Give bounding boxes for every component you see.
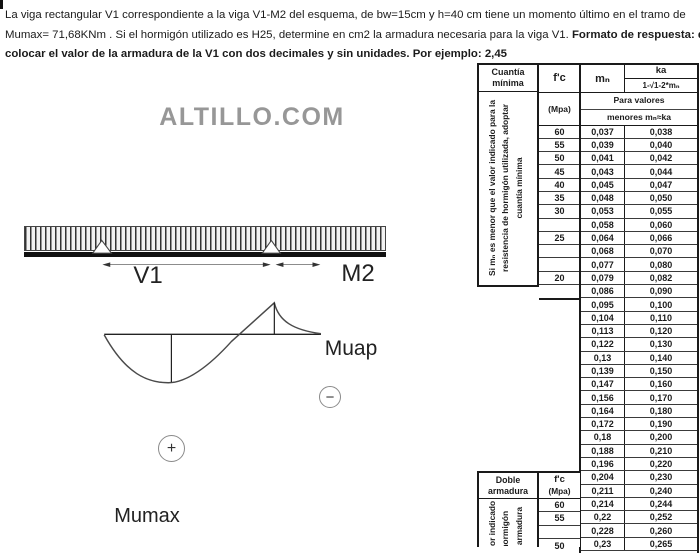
ka-cell: 0,070 — [625, 245, 697, 257]
fc-unit-lower: (Mpa) — [539, 486, 580, 500]
fc-value-cell: 60 — [539, 126, 580, 139]
ka-cell: 0,066 — [625, 232, 697, 244]
fc-value-cell: 50 — [539, 152, 580, 165]
ka-cell: 0,055 — [625, 205, 697, 217]
ka-cell: 0,252 — [625, 511, 697, 523]
ka-cell: 0,038 — [625, 126, 697, 138]
moment-curve — [104, 303, 321, 383]
ka-formula: 1-√1-2*mₙ — [625, 79, 697, 92]
table-row: 0,188 0,210 — [581, 445, 697, 458]
ka-header: ka 1-√1-2*mₙ — [625, 65, 697, 92]
mn-cell: 0,139 — [581, 365, 625, 377]
mn-cell: 0,095 — [581, 298, 625, 310]
ka-cell: 0,150 — [625, 365, 697, 377]
table-row: 0,045 0,047 — [581, 179, 697, 192]
mn-cell: 0,13 — [581, 352, 625, 364]
table-row: 0,041 0,042 — [581, 152, 697, 165]
fc-unit: (Mpa) — [539, 93, 580, 126]
fc-value-cell: 35 — [539, 192, 580, 205]
mn-cell: 0,048 — [581, 192, 625, 204]
ka-cell: 0,044 — [625, 165, 697, 177]
fc-lower-values: 605550 — [539, 499, 580, 552]
fc-value-cell — [539, 219, 580, 232]
ka-cell: 0,230 — [625, 471, 697, 483]
fc-value-cell: 60 — [539, 499, 580, 512]
ka-cell: 0,170 — [625, 391, 697, 403]
fc-value-cell: 20 — [539, 272, 580, 285]
ka-cell: 0,080 — [625, 258, 697, 270]
fc-header-lower: f'c — [539, 473, 580, 486]
table-row: 0,053 0,055 — [581, 205, 697, 218]
cuantia-line-1: Cuantía — [491, 67, 524, 78]
cuantia-line-2: mínima — [492, 78, 524, 89]
mn-cell: 0,228 — [581, 524, 625, 536]
negative-moment-sign: − — [319, 386, 341, 408]
subheader-line-2: menores mₙ≈ka — [581, 110, 697, 125]
fc-lower-column: f'c (Mpa) 605550 — [539, 471, 580, 547]
table-row: 0,086 0,090 — [581, 285, 697, 298]
ka-cell: 0,090 — [625, 285, 697, 297]
mn-cell: 0,196 — [581, 458, 625, 470]
mn-cell: 0,079 — [581, 272, 625, 284]
ka-cell: 0,244 — [625, 498, 697, 510]
mn-ka-rows: 0,037 0,038 0,039 0,040 0,041 0,042 0,04… — [581, 126, 697, 552]
doble-line-2: armadura — [488, 486, 528, 497]
mn-cell: 0,043 — [581, 165, 625, 177]
mn-cell: 0,058 — [581, 219, 625, 231]
mn-cell: 0,086 — [581, 285, 625, 297]
arrowhead-right-icon — [263, 262, 271, 267]
mn-cell: 0,204 — [581, 471, 625, 483]
fc-value-cell: 55 — [539, 139, 580, 152]
table-row: 0,22 0,252 — [581, 511, 697, 524]
watermark-text: ALTILLO.COM — [152, 103, 352, 132]
fc-value-cell — [539, 258, 580, 271]
minima-note-rotated: Si mₙ es menor que el valor indicado par… — [479, 93, 533, 283]
doble-note-rotated: Si mₙ es mayor que el valor indicado par… — [479, 499, 533, 546]
fc-value-cell — [539, 285, 580, 298]
ka-cell: 0,047 — [625, 179, 697, 191]
table-row: 0,214 0,244 — [581, 498, 697, 511]
ka-cell: 0,082 — [625, 272, 697, 284]
table-row: 0,058 0,060 — [581, 219, 697, 232]
beam-span-label: V1 — [118, 262, 178, 290]
mn-cell: 0,113 — [581, 325, 625, 337]
ka-cell: 0,240 — [625, 485, 697, 497]
arrowhead-left-icon — [102, 262, 110, 267]
ka-cell: 0,040 — [625, 139, 697, 151]
ka-cell: 0,060 — [625, 219, 697, 231]
table-row: 0,122 0,130 — [581, 338, 697, 351]
table-row: 0,156 0,170 — [581, 391, 697, 404]
page-edge-mark — [0, 0, 3, 9]
arrowhead-right-icon — [312, 262, 320, 267]
table-row: 0,068 0,070 — [581, 245, 697, 258]
doble-armadura-block: Doble armadura Si mₙ es mayor que el val… — [477, 471, 539, 547]
fc-value-cell — [539, 245, 580, 258]
mn-cell: 0,039 — [581, 139, 625, 151]
mn-cell: 0,22 — [581, 511, 625, 523]
fc-value-cell: 30 — [539, 205, 580, 218]
mn-cell: 0,214 — [581, 498, 625, 510]
problem-line-2-bold: Formato de respuesta: debe — [572, 29, 700, 41]
ka-cell: 0,100 — [625, 298, 697, 310]
table-row: 0,18 0,200 — [581, 431, 697, 444]
table-row: 0,172 0,190 — [581, 418, 697, 431]
ka-cell: 0,042 — [625, 152, 697, 164]
ka-cell: 0,050 — [625, 192, 697, 204]
mn-cell: 0,037 — [581, 126, 625, 138]
fc-value-cell: 55 — [539, 512, 580, 525]
table-subheader: Para valores menores mₙ≈ka — [581, 93, 697, 126]
fc-value-cell: 25 — [539, 232, 580, 245]
problem-line-2-normal: Mumax= 71,68KNm . Si el hormigón utiliza… — [5, 29, 572, 41]
table-row: 0,196 0,220 — [581, 458, 697, 471]
mn-cell: 0,156 — [581, 391, 625, 403]
mn-cell: 0,104 — [581, 312, 625, 324]
table-row: 0,079 0,082 — [581, 272, 697, 285]
ka-cell: 0,200 — [625, 431, 697, 443]
mn-cell: 0,041 — [581, 152, 625, 164]
arrowhead-left-icon — [276, 262, 284, 267]
problem-line-3: colocar el valor de la armadura de la V1… — [5, 45, 699, 65]
ka-cell: 0,265 — [625, 538, 697, 550]
subheader-line-1: Para valores — [581, 93, 697, 110]
ka-cell: 0,120 — [625, 325, 697, 337]
ka-cell: 0,210 — [625, 445, 697, 457]
mn-cell: 0,18 — [581, 431, 625, 443]
table-row: 0,228 0,260 — [581, 524, 697, 537]
table-row: 0,139 0,150 — [581, 365, 697, 378]
problem-line-1: La viga rectangular V1 correspondiente a… — [5, 6, 699, 26]
table-row: 0,23 0,265 — [581, 538, 697, 551]
table-row: 0,104 0,110 — [581, 312, 697, 325]
table-row: 0,048 0,050 — [581, 192, 697, 205]
table-row: 0,164 0,180 — [581, 405, 697, 418]
cuantia-minima-block: Cuantía mínima Si mₙ es menor que el val… — [477, 63, 539, 287]
fc-upper-values: 605550454035302520 — [539, 126, 580, 299]
doble-armadura-header: Doble armadura — [479, 473, 537, 499]
mn-cell: 0,077 — [581, 258, 625, 270]
minima-note-window: Si mₙ es menor que el valor indicado par… — [479, 92, 537, 284]
table-row: 0,204 0,230 — [581, 471, 697, 484]
ka-cell: 0,110 — [625, 312, 697, 324]
table-row: 0,077 0,080 — [581, 258, 697, 271]
ka-cell: 0,220 — [625, 458, 697, 470]
positive-moment-sign: + — [158, 435, 185, 462]
ka-cell: 0,180 — [625, 405, 697, 417]
mn-cell: 0,053 — [581, 205, 625, 217]
table-row: 0,064 0,066 — [581, 232, 697, 245]
ka-cell: 0,160 — [625, 378, 697, 390]
doble-line-1: Doble — [496, 475, 520, 486]
problem-statement: La viga rectangular V1 correspondiente a… — [5, 6, 699, 65]
mumax-label: Mumax — [108, 505, 186, 528]
mn-cell: 0,045 — [581, 179, 625, 191]
mn-cell: 0,122 — [581, 338, 625, 350]
muap-label: Muap — [318, 337, 384, 361]
table-row: 0,095 0,100 — [581, 298, 697, 311]
mn-cell: 0,068 — [581, 245, 625, 257]
fc-value-cell: 45 — [539, 165, 580, 178]
table-row: 0,147 0,160 — [581, 378, 697, 391]
doble-note-window: Si mₙ es mayor que el valor indicado par… — [479, 499, 537, 546]
mn-header: mₙ — [581, 65, 625, 92]
mn-ka-table: mₙ ka 1-√1-2*mₙ Para valores menores mₙ≈… — [579, 63, 699, 553]
fc-value-cell: 50 — [539, 539, 580, 552]
table-row: 0,113 0,120 — [581, 325, 697, 338]
table-row: 0,037 0,038 — [581, 126, 697, 139]
mn-cell: 0,188 — [581, 445, 625, 457]
mn-cell: 0,164 — [581, 405, 625, 417]
table-row: 0,13 0,140 — [581, 352, 697, 365]
ka-cell: 0,260 — [625, 524, 697, 536]
mn-cell: 0,23 — [581, 538, 625, 550]
table-row: 0,039 0,040 — [581, 139, 697, 152]
table-row: 0,211 0,240 — [581, 485, 697, 498]
overhang-span-label: M2 — [332, 260, 384, 288]
mn-cell: 0,211 — [581, 485, 625, 497]
problem-line-2: Mumax= 71,68KNm . Si el hormigón utiliza… — [5, 26, 699, 46]
fc-value-cell: 40 — [539, 179, 580, 192]
left-support-icon — [93, 240, 112, 253]
right-support-icon — [262, 240, 280, 253]
cuantia-minima-header: Cuantía mínima — [479, 65, 537, 92]
ka-cell: 0,190 — [625, 418, 697, 430]
fc-value-cell — [539, 526, 580, 539]
ka-cell: 0,140 — [625, 352, 697, 364]
moment-diagram-lines — [104, 303, 321, 383]
mn-cell: 0,172 — [581, 418, 625, 430]
mn-ka-header: mₙ ka 1-√1-2*mₙ — [581, 65, 697, 93]
fc-upper-column: f'c (Mpa) 605550454035302520 — [539, 63, 580, 300]
mn-cell: 0,147 — [581, 378, 625, 390]
mn-cell: 0,064 — [581, 232, 625, 244]
ka-title: ka — [625, 65, 697, 79]
table-row: 0,043 0,044 — [581, 165, 697, 178]
exam-problem-page: { "problem": { "line1": "La viga rectang… — [0, 0, 700, 545]
fc-header: f'c — [539, 65, 580, 93]
ka-cell: 0,130 — [625, 338, 697, 350]
